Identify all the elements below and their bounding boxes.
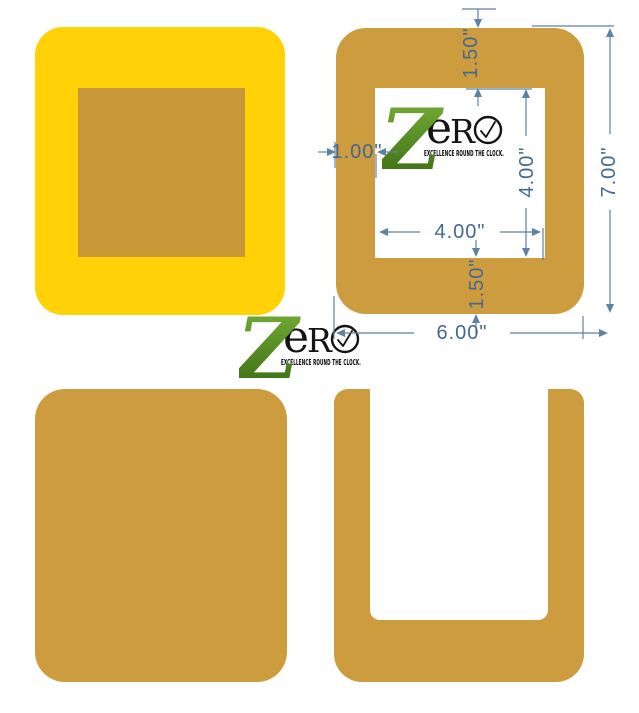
logo-z-letter: Z [382,103,444,177]
product-image-canvas: e R EXCELLENCE ROUND THE CLOCK. Z e R EX… [0,0,639,713]
solid-back-panel-shape [35,389,287,682]
u-channel-shape [334,389,584,682]
arrowhead [599,329,608,337]
dim-label-overall-width: 6.00" [436,322,487,344]
dim-label-overall-height: 7.00" [598,146,620,197]
brand-logo-center: e R EXCELLENCE ROUND THE CLOCK. Z [239,312,364,386]
u-channel-opening [370,389,548,620]
logo-z-letter: Z [239,312,301,386]
logo-r-letter: R [307,321,333,360]
arrowhead [606,28,614,37]
brand-logo-inset: e R EXCELLENCE ROUND THE CLOCK. Z [382,103,507,177]
clock-hands-icon [338,331,352,346]
letter-o-clock-icon [332,326,358,352]
arrowhead [474,19,482,28]
logo-r-letter: R [450,112,476,151]
arrowhead [327,148,336,156]
yellow-frame-inset-panel [78,88,245,257]
arrowhead [606,304,614,313]
arrowhead [472,314,480,323]
clock-hands-icon [481,122,495,137]
yellow-frame-shape [35,27,285,315]
letter-o-clock-icon [475,117,501,143]
